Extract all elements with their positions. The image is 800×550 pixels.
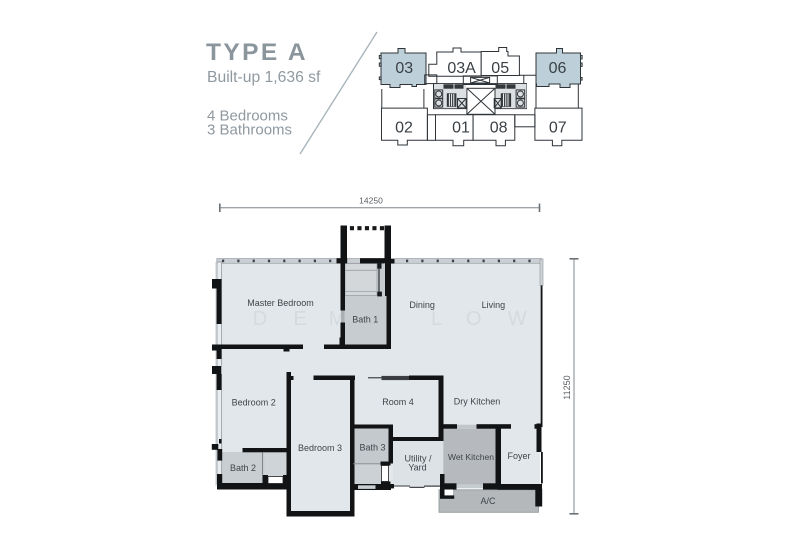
svg-text:L: L: [431, 308, 442, 330]
svg-text:01: 01: [452, 119, 470, 136]
svg-text:E: E: [293, 308, 306, 330]
svg-text:07: 07: [549, 119, 567, 136]
svg-text:Bath 3: Bath 3: [359, 443, 385, 453]
svg-text:Dry Kitchen: Dry Kitchen: [454, 397, 501, 407]
svg-text:14250: 14250: [359, 196, 383, 206]
svg-text:02: 02: [395, 119, 413, 136]
svg-text:Master Bedroom: Master Bedroom: [247, 298, 314, 308]
svg-text:03A: 03A: [447, 60, 476, 77]
svg-text:3 Bathrooms: 3 Bathrooms: [207, 122, 292, 139]
svg-text:Yard: Yard: [408, 463, 426, 473]
svg-text:Foyer: Foyer: [507, 451, 530, 461]
svg-text:Bedroom 2: Bedroom 2: [232, 398, 276, 408]
svg-text:Room 4: Room 4: [382, 397, 414, 407]
svg-text:Bath 1: Bath 1: [352, 315, 378, 325]
svg-text:05: 05: [491, 60, 509, 77]
svg-text:Wet Kitchen: Wet Kitchen: [448, 452, 494, 462]
svg-text:06: 06: [549, 60, 567, 77]
svg-text:A/C: A/C: [480, 496, 496, 506]
svg-text:Dining: Dining: [409, 300, 435, 310]
svg-text:TYPE A: TYPE A: [206, 39, 308, 66]
svg-text:Bedroom 3: Bedroom 3: [298, 443, 342, 453]
svg-text:O: O: [466, 308, 482, 330]
svg-text:Built-up 1,636 sf: Built-up 1,636 sf: [207, 69, 321, 86]
svg-text:08: 08: [490, 119, 508, 136]
svg-text:03: 03: [395, 60, 413, 77]
svg-text:Bath 2: Bath 2: [230, 463, 256, 473]
svg-text:Living: Living: [482, 300, 506, 310]
svg-text:W: W: [508, 308, 527, 330]
svg-text:D: D: [253, 308, 267, 330]
svg-text:11250: 11250: [562, 375, 572, 399]
